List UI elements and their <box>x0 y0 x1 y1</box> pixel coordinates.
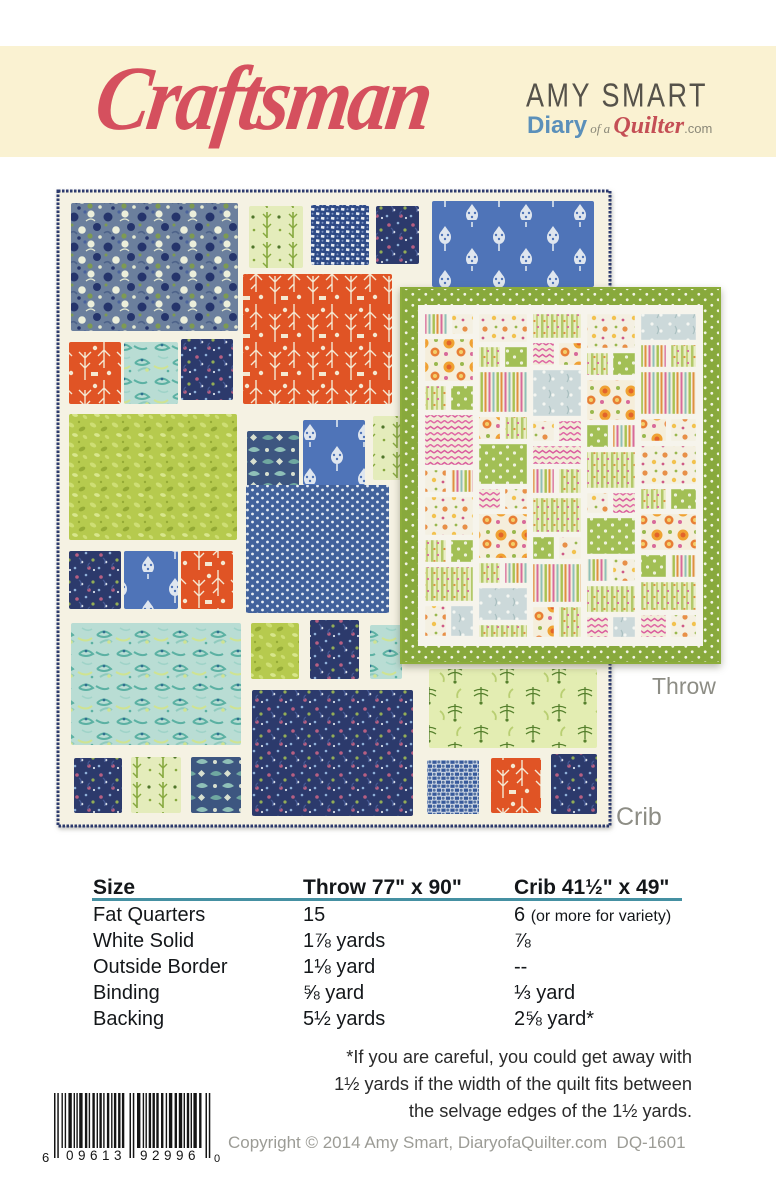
svg-text:6: 6 <box>42 1150 49 1165</box>
svg-text:09613: 09613 <box>66 1148 126 1163</box>
svg-text:92996: 92996 <box>140 1148 200 1163</box>
svg-text:0: 0 <box>214 1153 220 1165</box>
